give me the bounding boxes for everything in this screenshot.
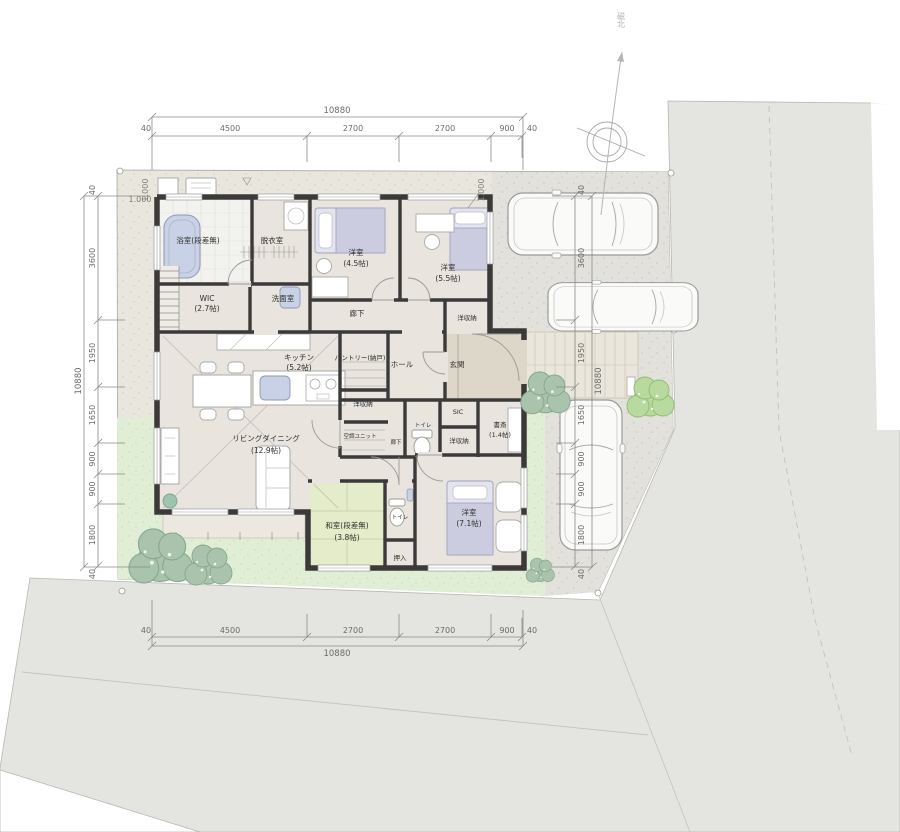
room-size-japanese: (3.8帖)	[334, 532, 359, 542]
room-label-sic: SIC	[453, 408, 464, 416]
car-top-view-2	[548, 280, 698, 333]
dim-left-seg: 1950	[88, 343, 97, 363]
armchair-1	[496, 482, 522, 512]
dim-bottom-seg: 2700	[343, 626, 363, 635]
desk-55	[416, 214, 454, 232]
dim-right-seg: 40	[577, 185, 586, 195]
terrace-deck	[163, 514, 305, 538]
room-label-bedroom45: 洋室	[349, 247, 364, 257]
survey-circle-inner	[593, 128, 621, 156]
staircase	[158, 266, 179, 332]
room-size-bedroom45: (4.5帖)	[343, 258, 368, 268]
room-label-pantry: パントリー(納戸)	[335, 353, 386, 362]
room-label-japanese: 和室(段差無)	[325, 520, 368, 530]
tv-board	[161, 428, 179, 484]
dim-right-seg: 1800	[577, 525, 586, 545]
dim-right-seg: 3600	[577, 248, 586, 268]
dim-bottom-seg: 40	[141, 626, 151, 635]
boundary-marker	[117, 168, 123, 174]
room-size-kitchen: (5.2帖)	[286, 362, 311, 372]
dim-right-seg: 40	[577, 569, 586, 579]
boundary-marker	[119, 588, 125, 594]
indoor-plant	[163, 494, 177, 508]
dimensions-top: 10880 40 4500 2700 2700 900 40	[141, 106, 537, 170]
dim-top-total: 10880	[323, 106, 350, 116]
room-label-closet-center: 洋収納	[353, 399, 373, 408]
floor-plan-canvas: 浴室(段差無) 脱衣室 洋室 (4.5帖) 洋室 (5.5帖) WIC (2.7…	[0, 0, 900, 832]
chair-55	[425, 235, 440, 250]
study-desk	[508, 408, 522, 452]
sofa	[256, 446, 290, 510]
dim-bottom-seg: 2700	[435, 626, 455, 635]
dim-left-total: 10880	[74, 367, 84, 394]
kitchen-sink	[260, 376, 290, 400]
dim-top-seg: 40	[527, 124, 537, 133]
car-top-view-1	[508, 190, 658, 258]
dim-left-seg: 40	[88, 185, 97, 195]
dim-top-seg: 4500	[220, 124, 240, 133]
room-label-corridor-south: 廊下	[390, 438, 402, 446]
room-size-bedroom71: (7.1帖)	[456, 518, 481, 528]
north-arrow-head	[617, 52, 624, 62]
compass-label: 磁北	[617, 11, 626, 29]
dim-bottom-seg: 900	[499, 626, 514, 635]
stove	[306, 375, 340, 401]
site-plan-svg: 浴室(段差無) 脱衣室 洋室 (4.5帖) 洋室 (5.5帖) WIC (2.7…	[0, 0, 900, 832]
desk-45	[312, 277, 348, 297]
dim-right-seg: 1650	[577, 405, 586, 425]
bed-45	[315, 208, 385, 253]
dim-bottom-total: 10880	[323, 649, 350, 659]
boundary-marker	[595, 590, 601, 596]
room-label-kitchen: キッチン	[284, 353, 314, 362]
dim-right-total: 10880	[594, 367, 604, 394]
dim-top-seg: 2700	[435, 124, 455, 133]
kitchen-back-counter	[217, 334, 310, 350]
room-size-study: (1.4帖)	[489, 430, 511, 439]
dim-left-seg: 1800	[88, 525, 97, 545]
dim-bottom-seg: 4500	[220, 626, 240, 635]
armchair-2	[496, 520, 522, 552]
dim-left-seg: 900	[88, 481, 97, 496]
room-label-entrance: 玄関	[450, 359, 465, 369]
room-label-corridor: 廊下	[350, 308, 365, 318]
dim-right-seg: 900	[577, 451, 586, 466]
dim-top-seg: 2700	[343, 124, 363, 133]
dim-left-seg: 3600	[88, 248, 97, 268]
room-label-washroom: 洗面室	[272, 293, 295, 303]
room-label-oshiire: 押入	[394, 553, 408, 562]
kitchen-island	[253, 371, 345, 405]
bed-71	[447, 481, 493, 555]
room-label-bedroom55: 洋室	[441, 262, 456, 272]
room-label-dressing: 脱衣室	[261, 235, 284, 245]
room-label-closet-north: 洋収納	[457, 313, 477, 322]
room-label-toilet-north: トイレ	[415, 423, 432, 429]
room-size-wic: (2.7帖)	[194, 303, 219, 313]
room-label-living: リビングダイニング	[232, 433, 300, 443]
dim-right-seg: 1950	[577, 343, 586, 363]
room-label-hall: ホール	[391, 360, 414, 369]
dim-left-seg: 900	[88, 451, 97, 466]
chair-45	[317, 259, 332, 274]
bed-55	[450, 208, 490, 270]
room-label-wic: WIC	[200, 294, 215, 303]
room-label-bath: 浴室(段差無)	[176, 235, 219, 245]
dim-left-seg: 40	[88, 569, 97, 579]
room-size-bedroom55: (5.5帖)	[435, 273, 460, 283]
dim-bottom-seg: 40	[527, 626, 537, 635]
room-label-ac-unit: 空調ユニット	[343, 432, 376, 440]
dim-right-seg: 900	[577, 481, 586, 496]
room-size-living: (12.9帖)	[251, 445, 281, 455]
room-label-closet-east: 洋収納	[449, 436, 469, 445]
boundary-marker	[668, 170, 674, 176]
dim-left-seg: 1650	[88, 405, 97, 425]
toilet-hand-sink	[407, 489, 413, 501]
elevation-label-3: 1.000	[477, 179, 486, 202]
room-label-study: 書斎	[494, 420, 508, 429]
dim-top-seg: 900	[499, 124, 514, 133]
car-top-view-3	[557, 400, 625, 550]
dim-top-seg: 40	[141, 124, 151, 133]
elevation-label-2: 1.000	[141, 179, 150, 202]
room-label-bedroom71: 洋室	[462, 507, 477, 517]
room-label-toilet-south: トイレ	[392, 515, 409, 521]
